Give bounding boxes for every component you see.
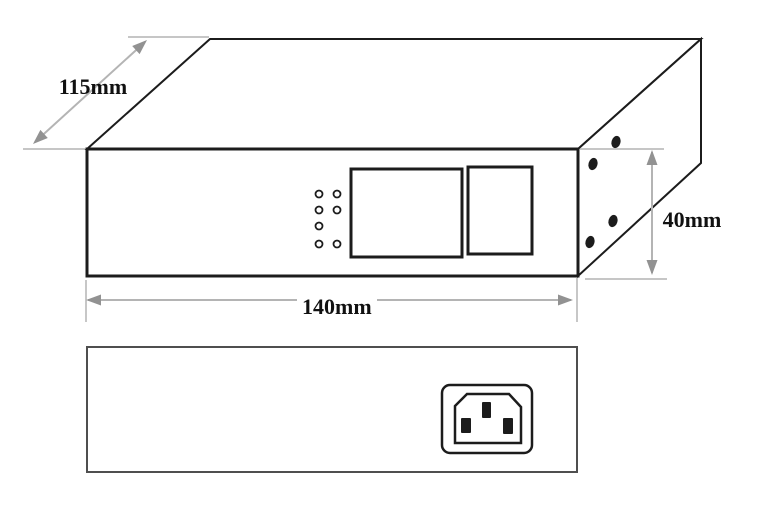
- power-inlet-left-pin: [461, 418, 471, 433]
- power-inlet-earth-pin: [482, 402, 491, 418]
- height-dimension-label: 40mm: [660, 209, 724, 231]
- width-arrowhead-icon: [86, 295, 101, 306]
- led-hole: [334, 207, 341, 214]
- enclosure-perspective-view: [87, 39, 701, 276]
- led-hole: [316, 223, 323, 230]
- power-inlet-right-pin: [503, 418, 513, 434]
- display-window-cutout: [351, 169, 462, 257]
- width-dimension-label: 140mm: [297, 296, 377, 318]
- led-hole: [316, 241, 323, 248]
- led-hole: [334, 241, 341, 248]
- enclosure-dimension-drawing: 115mm 140mm 40mm: [0, 0, 758, 506]
- iec-c14-power-inlet-icon: [442, 385, 532, 453]
- led-hole: [316, 207, 323, 214]
- enclosure-rear-view: [87, 347, 577, 472]
- switch-cutout: [468, 167, 532, 254]
- depth-dimension-label: 115mm: [57, 76, 129, 98]
- led-hole: [316, 191, 323, 198]
- width-arrowhead-icon: [558, 295, 573, 306]
- led-hole: [334, 191, 341, 198]
- height-arrowhead-icon: [647, 260, 658, 275]
